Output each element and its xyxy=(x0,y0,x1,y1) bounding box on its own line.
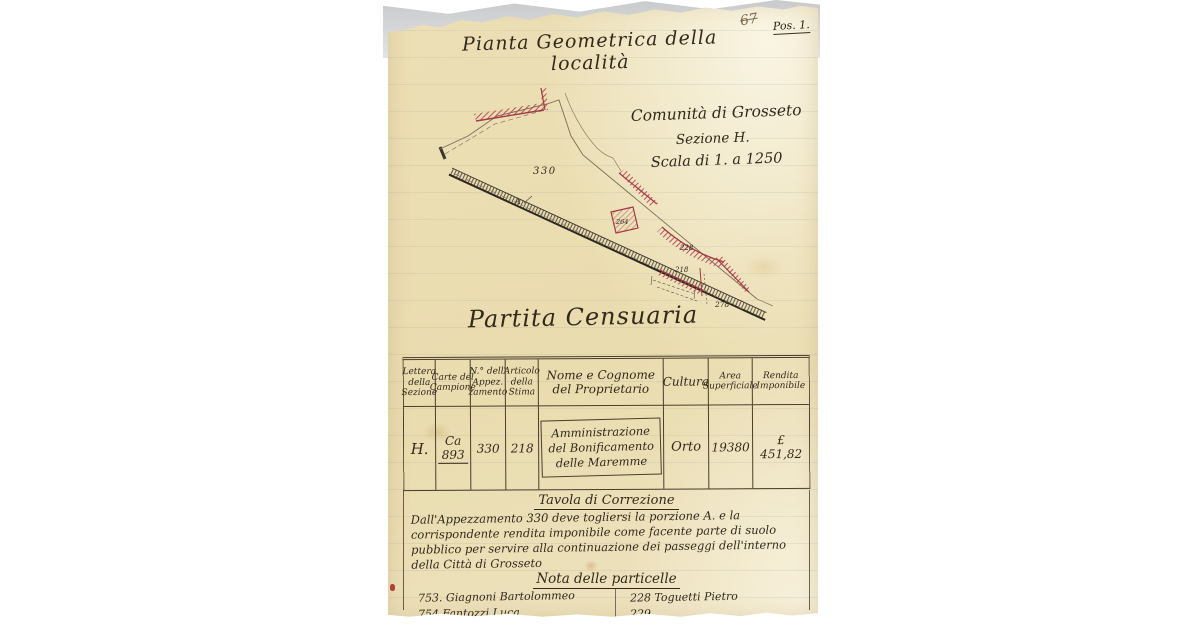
cell-articolo: 218 xyxy=(506,405,539,489)
note-entry: 754 Fantozzi Luca xyxy=(418,603,615,622)
parcel-278-label: 278 xyxy=(714,300,730,309)
note-heading: Nota delle particelle xyxy=(404,571,809,587)
upper-road-curve xyxy=(565,93,621,171)
owner-name: Amministrazione del Bonificamento delle … xyxy=(540,417,661,477)
red-wedge-right xyxy=(716,255,751,293)
note-entry: 229 xyxy=(629,603,809,622)
correction-text: Dall'Appezzamento 330 deve togliersi la … xyxy=(404,505,810,573)
parcel-264-label: 264 xyxy=(615,218,628,226)
cadastral-map: 330 264 228 218 278 A Comunità di Grosse… xyxy=(395,74,810,324)
correction-section: Tavola di Correzione Dall'Appezzamento 3… xyxy=(403,490,810,610)
document-page: 67 Pos. 1. Pianta Geometrica della local… xyxy=(388,4,818,618)
census-heading: Partita Censuaria xyxy=(458,300,709,333)
file-position-label: Pos. 1. xyxy=(773,18,810,35)
note-left-column: 753. Giagnoni Bartolommeo 754 Fantozzi L… xyxy=(404,589,615,623)
census-header-row: Lettera della Sezione Carte del Campione… xyxy=(404,358,809,406)
road-extension xyxy=(757,299,773,306)
pencil-folio-number: 67 xyxy=(739,11,759,30)
carte-value: Ca 893 xyxy=(438,433,468,463)
cell-lettera: H. xyxy=(404,406,436,490)
scanned-document-view: 67 Pos. 1. Pianta Geometrica della local… xyxy=(0,0,1200,628)
portion-a-tick xyxy=(524,196,532,203)
section-note: Sezione H. xyxy=(676,129,750,148)
census-table: Lettera della Sezione Carte del Campione… xyxy=(403,355,811,491)
parcel-330-label: 330 xyxy=(533,166,557,177)
cell-rendita: £ 451,82 xyxy=(753,404,809,488)
portion-a-label: A xyxy=(514,197,521,206)
scale-note: Scala di 1. a 1250 xyxy=(651,150,783,171)
parcel-218-label: 218 xyxy=(674,266,689,274)
census-data-row: H. Ca 893 330 218 Amministrazione del Bo… xyxy=(404,404,809,490)
cell-cultura: Orto xyxy=(664,404,709,488)
parcel-228-label: 228 xyxy=(679,244,694,252)
col-header-appezzamento: N.° dell' Appez. zamento xyxy=(471,360,506,406)
wall-band xyxy=(449,168,768,320)
page-title: Pianta Geometrica della località xyxy=(439,26,740,78)
community-note: Comunità di Grosseto xyxy=(631,101,802,125)
cell-area: 19380 xyxy=(709,404,753,488)
col-header-articolo: Articolo della Stima xyxy=(506,359,539,405)
red-ink-speck xyxy=(390,584,395,591)
note-right-column: 228 Toguetti Pietro 229 xyxy=(615,589,809,623)
note-parcel-list: 753. Giagnoni Bartolommeo 754 Fantozzi L… xyxy=(404,589,809,623)
col-header-carte: Carte del Campione xyxy=(436,360,471,406)
col-header-area: Area Superficiale xyxy=(709,358,753,404)
col-header-proprietario: Nome e Cognome del Proprietario xyxy=(539,359,664,406)
red-building-top xyxy=(474,87,548,121)
cell-proprietario: Amministrazione del Bonificamento delle … xyxy=(539,405,664,490)
col-header-rendita: Rendita Imponibile xyxy=(753,358,809,404)
cell-appezzamento: 330 xyxy=(471,406,506,490)
cell-carte: Ca 893 xyxy=(436,406,471,490)
